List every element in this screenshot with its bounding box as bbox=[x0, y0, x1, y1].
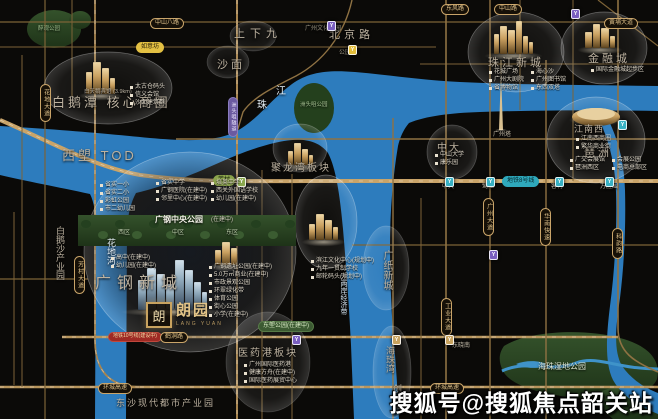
amenity-item: 太古仓码头 bbox=[130, 84, 165, 90]
metro-station-icon bbox=[348, 45, 357, 55]
amenity-item: 康乐园 bbox=[435, 160, 464, 166]
amenity-column: 省实中学广钢医院(在建中)邻里中心(在建中) bbox=[156, 180, 207, 202]
amenity-item: 彩虹公园 bbox=[100, 198, 135, 204]
amenity-item: 高中(在建中) bbox=[111, 255, 156, 261]
amenity-item: 市政景观公园 bbox=[209, 280, 272, 286]
amenity-item: 省实二小 bbox=[100, 190, 135, 196]
metro-station-icon bbox=[445, 177, 454, 187]
metro-station-icon bbox=[327, 21, 336, 31]
amenity-list: 江南西商圈繁华商业街 bbox=[576, 136, 611, 150]
amenity-item: 琶洲西区 bbox=[570, 165, 605, 171]
project-logo: 朗 朗园 LANG YUAN bbox=[146, 302, 223, 328]
road-pill: 环城高速 bbox=[98, 383, 132, 394]
amenity-column: 滨江文化中心(规划中)九年一贯制学校邮轮码头(规划中) bbox=[311, 258, 374, 280]
map-label: 广钢中央公园 bbox=[155, 216, 203, 224]
map-label: 广纸新城 bbox=[379, 250, 394, 290]
amenity-item: 沙面建筑群 bbox=[130, 100, 165, 106]
amenity-item: 西关外国语学校 bbox=[211, 188, 258, 194]
map-label: 上下九 bbox=[234, 29, 282, 40]
amenity-item: 幼儿园(在建中) bbox=[111, 263, 156, 269]
map-label: 东区 bbox=[226, 230, 238, 236]
amenity-list: 高中(在建中)幼儿园(在建中) bbox=[111, 255, 156, 269]
map-label: 洲头咀公园 bbox=[300, 103, 328, 109]
amenity-column: 培英中学西关外国语学校幼儿园(在建中) bbox=[211, 180, 258, 202]
amenity-column: 中山大学康乐园 bbox=[435, 152, 464, 166]
map-label: 西塱 TOD bbox=[62, 149, 137, 162]
amenity-list: 国际金融城起步区 bbox=[591, 67, 644, 73]
map-label: (在建中) bbox=[211, 217, 233, 223]
amenity-column: 广交会展馆琶洲西区 bbox=[570, 157, 605, 171]
amenity-item: 江南西商圈 bbox=[576, 136, 611, 142]
map-label: 东沙现代都市产业园 bbox=[116, 399, 215, 408]
map-label: 醉观公园 bbox=[38, 27, 60, 33]
amenity-column: 省实一小省实二小彩虹公园市二幼儿园 bbox=[100, 182, 135, 212]
metro-station-icon bbox=[392, 335, 401, 345]
project-name: 朗园 bbox=[176, 304, 223, 319]
amenity-item: 九年一贯制学校 bbox=[311, 266, 374, 272]
map-label: 江 bbox=[276, 87, 286, 97]
map-label: 白天鹅宾馆 (3.9km) bbox=[84, 90, 132, 96]
road-pill: 洲头咀隧道 bbox=[228, 97, 238, 137]
metro-station-icon bbox=[486, 177, 495, 187]
road-pill: 中山路 bbox=[494, 4, 522, 15]
amenity-item: 中山大学 bbox=[435, 152, 464, 158]
amenity-item: 培英中学 bbox=[211, 180, 258, 186]
amenity-item: 市二幼儿园 bbox=[100, 206, 135, 212]
amenity-column: 海心沙广州图书馆东西双塔 bbox=[531, 69, 566, 91]
amenity-item: 广钢遗址公园(在建中) bbox=[209, 264, 272, 270]
amenity-item: 健康方舟(在建中) bbox=[244, 370, 297, 376]
road-pill: 东塱公园(在建中) bbox=[258, 321, 314, 332]
road-pill: 鹤洞路 bbox=[160, 332, 188, 343]
amenity-item: 5.0万㎡商业(在建中) bbox=[209, 272, 272, 278]
amenity-item: 广钢医院(在建中) bbox=[156, 188, 207, 194]
amenity-list: 广州国际医药港健康方舟(在建中)国际医药展贸中心 bbox=[244, 362, 297, 384]
amenity-list: 省实一小省实二小彩虹公园市二幼儿园 bbox=[100, 182, 135, 212]
amenity-item: 幼儿园(在建中) bbox=[211, 196, 258, 202]
road-pill: 东风路 bbox=[441, 4, 469, 15]
watermark-text: 搜狐号@搜狐焦点韶关站 bbox=[390, 384, 653, 418]
metro-station-icon bbox=[571, 9, 580, 19]
map-labels-layer: 白鹅潭 核心商圈西塱 TOD上下九沙面北京路广钢新城聚龙湾板块珠江新城金融城琶洲… bbox=[0, 0, 658, 419]
map-label: 珠江新城 bbox=[488, 58, 544, 69]
amenity-column: 广州国际医药港健康方舟(在建中)国际医药展贸中心 bbox=[244, 362, 297, 384]
road-pill: 地铁10号线(建设中) bbox=[108, 332, 162, 342]
amenity-item: 国际医药展贸中心 bbox=[244, 378, 297, 384]
amenity-item: 广州图书馆 bbox=[531, 77, 566, 83]
road-pill: 广州大道 bbox=[483, 198, 494, 236]
amenity-item: 省实一小 bbox=[100, 182, 135, 188]
amenity-item: 海心沙 bbox=[531, 69, 566, 75]
map-label: 聚龙湾板块 bbox=[271, 164, 331, 174]
metro-station-icon bbox=[618, 120, 627, 130]
amenity-item: 国际金融城起步区 bbox=[591, 67, 644, 73]
amenity-item: 广州大剧院 bbox=[489, 77, 524, 83]
amenity-item: 广交会展馆 bbox=[570, 157, 605, 163]
map-label: 东晓南 bbox=[452, 343, 470, 349]
amenity-item: 环翠绿化带 bbox=[209, 288, 272, 294]
amenity-list: 中山大学康乐园 bbox=[435, 152, 464, 166]
amenity-column: 国际金融城起步区 bbox=[591, 67, 644, 73]
map-label: 江南西 bbox=[574, 125, 604, 134]
real-estate-location-map: 白鹅潭 核心商圈西塱 TOD上下九沙面北京路广钢新城聚龙湾板块珠江新城金融城琶洲… bbox=[0, 0, 658, 419]
map-label: 广州塔 bbox=[493, 132, 511, 138]
amenity-item: 电商总部区 bbox=[612, 165, 647, 171]
amenity-list: 太古仓码头信义会馆沙面建筑群 bbox=[130, 84, 165, 106]
amenity-item: 广州国际医药港 bbox=[244, 362, 297, 368]
metro-station-icon bbox=[292, 335, 301, 345]
amenity-item: 省博物馆 bbox=[489, 85, 524, 91]
amenity-item: 邻里中心(在建中) bbox=[156, 196, 207, 202]
road-pill: 工业大道 bbox=[441, 298, 452, 336]
amenity-item: 花城广场 bbox=[489, 69, 524, 75]
amenity-item: 省实中学 bbox=[156, 180, 207, 186]
metro-station-icon bbox=[445, 335, 454, 345]
map-label: 医药港板块 bbox=[238, 349, 298, 359]
metro-station-icon bbox=[555, 177, 564, 187]
map-label: 中区 bbox=[172, 230, 184, 236]
map-label: 白鹅沙产业园 bbox=[54, 226, 65, 280]
amenity-column: 花城广场广州大剧院省博物馆 bbox=[489, 69, 524, 91]
amenity-item: 滨江文化中心(规划中) bbox=[311, 258, 374, 264]
amenity-item: 东西双塔 bbox=[531, 85, 566, 91]
amenity-column: 江南西商圈繁华商业街 bbox=[576, 136, 611, 150]
road-pill: 科韵路 bbox=[612, 228, 623, 259]
project-logo-seal: 朗 bbox=[146, 302, 172, 328]
amenity-column: 高中(在建中)幼儿园(在建中) bbox=[111, 255, 156, 269]
amenity-item: 邮轮码头(规划中) bbox=[311, 274, 374, 280]
map-label: 珠 bbox=[257, 101, 267, 111]
project-name-latin: LANG YUAN bbox=[176, 321, 223, 327]
amenity-list: 培英中学西关外国语学校幼儿园(在建中) bbox=[211, 180, 258, 202]
metro-station-icon bbox=[489, 250, 498, 260]
road-pill: 中山八路 bbox=[150, 18, 184, 29]
map-label: 广钢新城 bbox=[95, 276, 183, 292]
road-pill: 花地大道 bbox=[40, 84, 51, 122]
amenity-list: 滨江文化中心(规划中)九年一贯制学校邮轮码头(规划中) bbox=[311, 258, 374, 280]
amenity-item: 信义会馆 bbox=[130, 92, 165, 98]
road-pill: 华南快速 bbox=[540, 208, 551, 246]
amenity-list: 省实中学广钢医院(在建中)邻里中心(在建中) bbox=[156, 180, 207, 202]
amenity-list: 广交会展馆琶洲西区会展公园电商总部区 bbox=[570, 157, 647, 171]
amenity-column: 会展公园电商总部区 bbox=[612, 157, 647, 171]
amenity-column: 太古仓码头信义会馆沙面建筑群 bbox=[130, 84, 165, 106]
amenity-item: 繁华商业街 bbox=[576, 144, 611, 150]
map-label: 海珠湾 bbox=[384, 346, 396, 373]
amenity-list: 花城广场广州大剧院省博物馆海心沙广州图书馆东西双塔 bbox=[489, 69, 566, 91]
amenity-item: 会展公园 bbox=[612, 157, 647, 163]
road-pill: 芳村大道 bbox=[74, 256, 85, 294]
map-label: 海珠湿地公园 bbox=[538, 363, 586, 371]
road-pill: 地铁8号线 bbox=[502, 176, 539, 187]
map-label: 金融城 bbox=[588, 54, 630, 65]
metro-station-icon bbox=[605, 177, 614, 187]
road-pill: 如意坊 bbox=[136, 42, 164, 53]
map-label: 西区 bbox=[118, 230, 130, 236]
map-label: 沙面 bbox=[217, 60, 245, 71]
road-pill: 黄埔大道 bbox=[604, 18, 638, 29]
